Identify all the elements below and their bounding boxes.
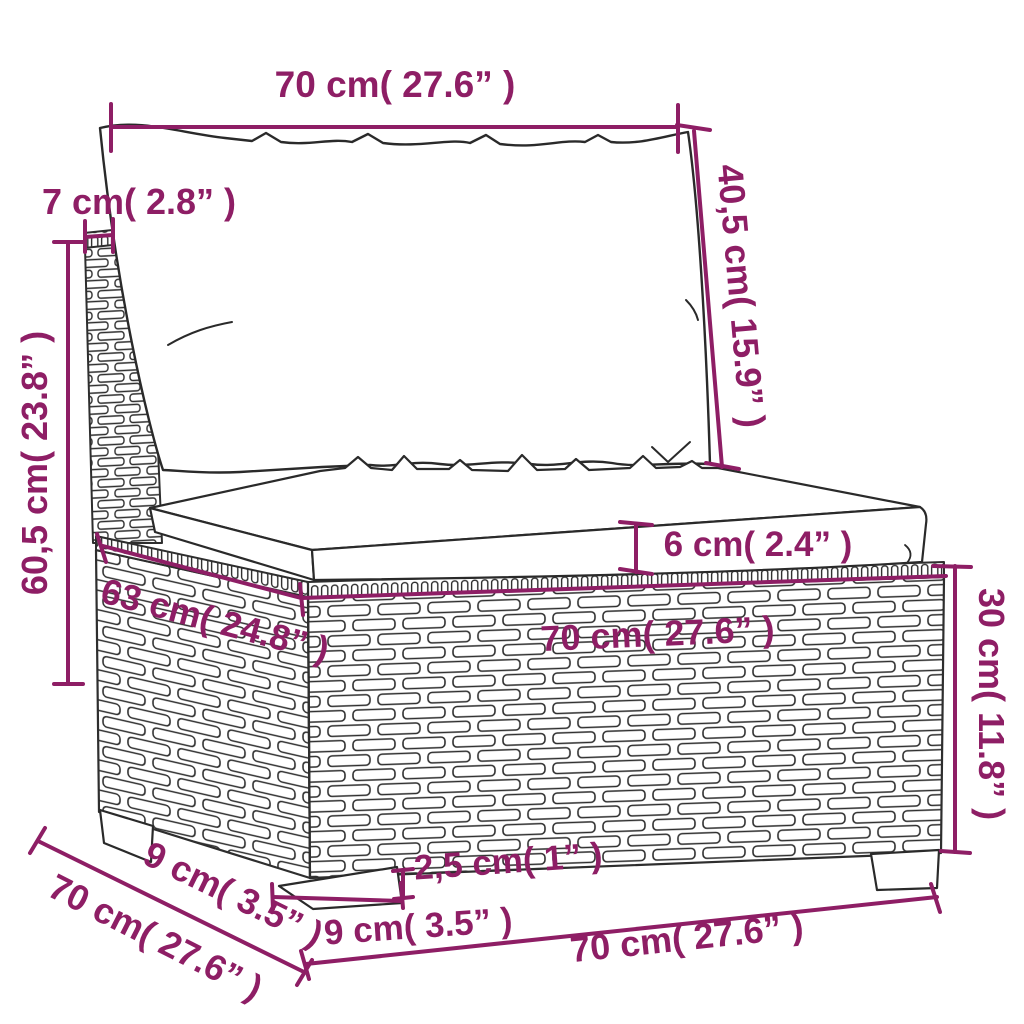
dim-total-height: 60,5 cm( 23.8” ) [14,242,83,684]
dim-line-back-depth [85,235,113,237]
dim-label-base-height: 30 cm( 11.8” ) [971,588,1012,820]
dim-label-back-depth: 7 cm( 2.8” ) [42,181,236,222]
dim-label-bottom-width: 70 cm( 27.6” ) [568,905,805,970]
dim-label-seat-thickness: 6 cm( 2.4” ) [664,525,853,564]
dim-label-back-cushion-height: 40,5 cm( 15.9” ) [710,163,774,430]
dim-base-height: 30 cm( 11.8” ) [933,566,1012,853]
dim-label-total-height: 60,5 cm( 23.8” ) [14,331,55,595]
dim-label-back-width: 70 cm( 27.6” ) [275,64,516,105]
back-cushion [100,125,710,473]
sofa-dimension-drawing: 70 cm( 27.6” ) 40,5 cm( 15.9” ) 7 cm( 2.… [0,0,1024,1024]
rattan-base [96,536,944,878]
leg-front-right [871,850,939,890]
sofa-line-art [84,125,944,909]
dimension-diagram: 70 cm( 27.6” ) 40,5 cm( 15.9” ) 7 cm( 2.… [0,0,1024,1024]
